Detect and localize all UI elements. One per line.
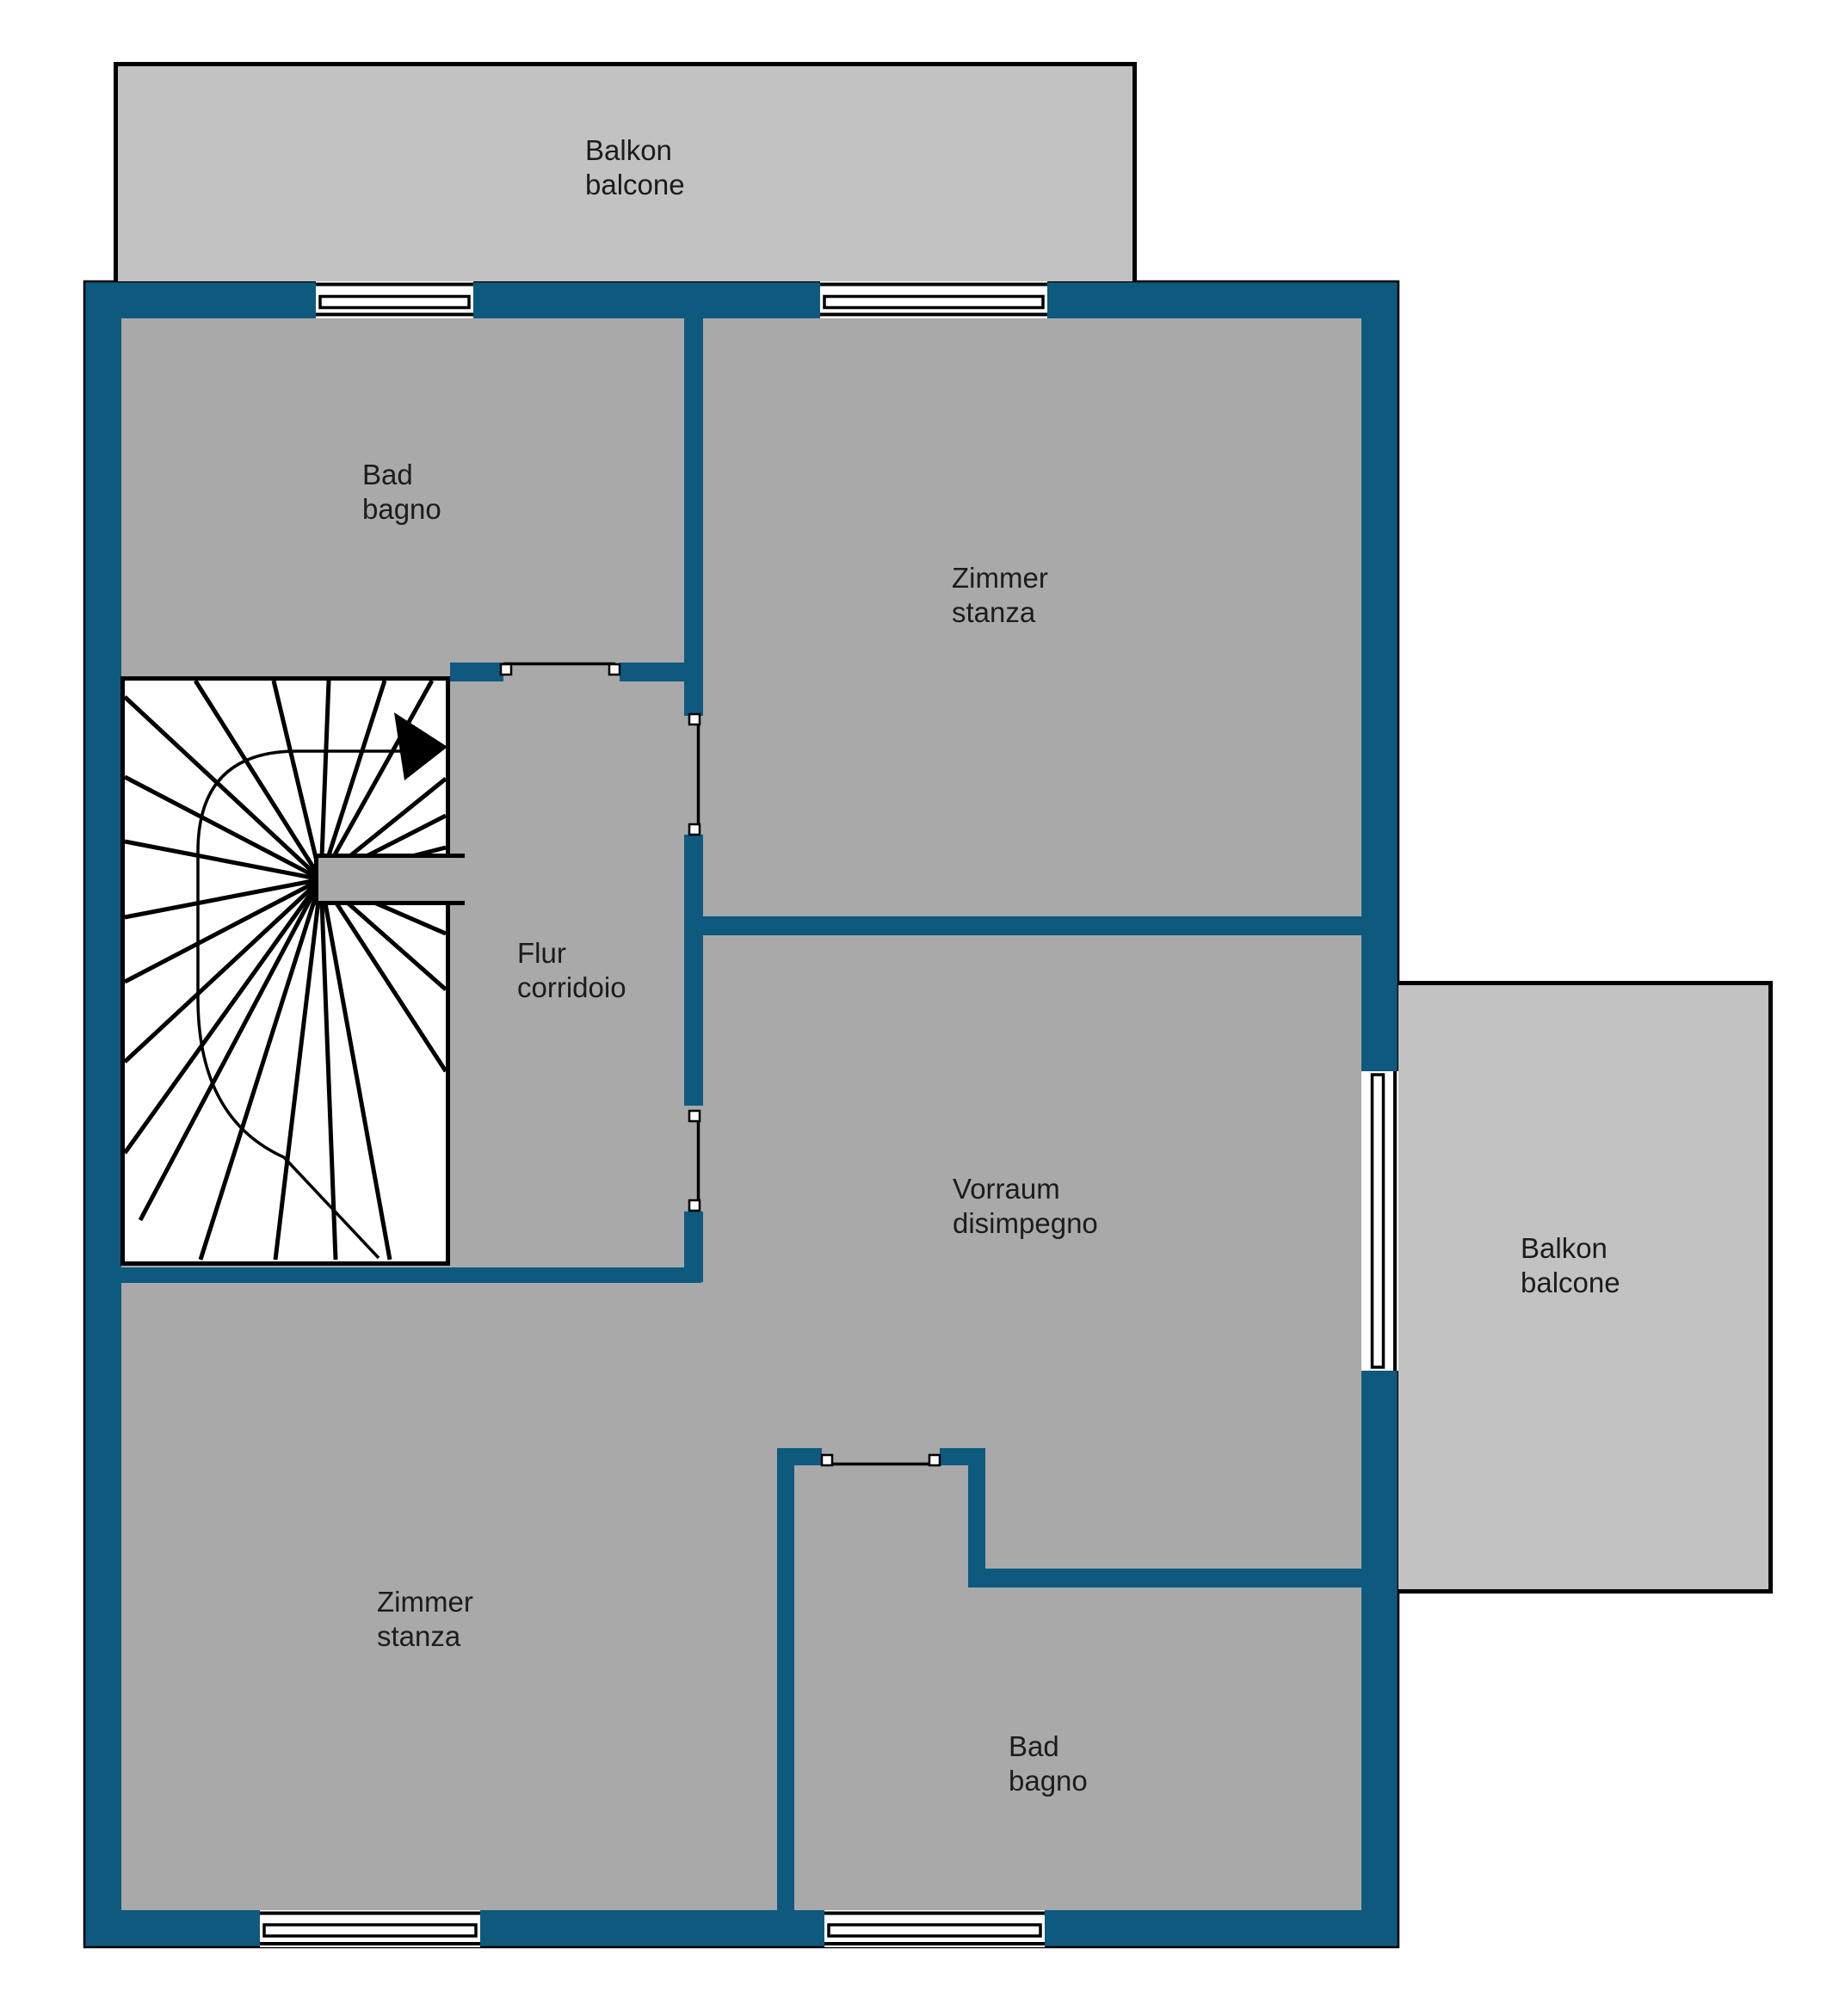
- staircase: [123, 679, 468, 1264]
- svg-text:Bad: Bad: [1009, 1730, 1059, 1762]
- window-bottom-a-mullion: [264, 1925, 476, 1936]
- wall-bad-bottom-north: [968, 1569, 1361, 1588]
- balcony-door-right: [1361, 1071, 1398, 1371]
- svg-text:bagno: bagno: [1009, 1765, 1088, 1797]
- wall-flur-east-mid: [684, 835, 703, 1106]
- floor-plan-svg: Balkon balcone Bad bagno Zimmer stanza F…: [0, 0, 1839, 2016]
- window-top-b: [820, 281, 1047, 318]
- wall-bad-bottom-notch: [968, 1448, 985, 1588]
- window-top-b-mullion: [824, 297, 1043, 308]
- svg-text:Flur: Flur: [517, 937, 566, 969]
- svg-text:bagno: bagno: [362, 493, 441, 525]
- svg-text:Zimmer: Zimmer: [952, 562, 1048, 594]
- floor-plan-page: Balkon balcone Bad bagno Zimmer stanza F…: [0, 0, 1839, 2016]
- wall-bad-top-south-b: [620, 663, 684, 681]
- svg-text:Vorraum: Vorraum: [953, 1173, 1060, 1205]
- balcony-door-mullion: [1373, 1075, 1384, 1367]
- svg-text:balcone: balcone: [585, 169, 685, 200]
- stair-landing-floor: [314, 854, 467, 905]
- stair-landing: [314, 854, 467, 905]
- window-top-a: [316, 281, 473, 318]
- window-bottom-b-mullion: [829, 1925, 1040, 1936]
- svg-text:Balkon: Balkon: [585, 134, 672, 166]
- wall-zimmer-top-south: [703, 916, 1361, 935]
- svg-text:Balkon: Balkon: [1521, 1232, 1608, 1264]
- svg-text:stanza: stanza: [952, 596, 1036, 628]
- window-top-a-mullion: [320, 297, 469, 308]
- wall-stair-south: [121, 1267, 701, 1283]
- wall-bad-bottom-west: [777, 1448, 794, 1910]
- svg-text:disimpegno: disimpegno: [953, 1207, 1098, 1239]
- svg-text:Zimmer: Zimmer: [377, 1586, 473, 1618]
- wall-bad-top-south-a: [450, 663, 503, 681]
- window-bottom-a: [260, 1910, 480, 1947]
- svg-text:Bad: Bad: [362, 459, 413, 490]
- svg-text:balcone: balcone: [1521, 1267, 1620, 1298]
- wall-flur-east-upper: [684, 318, 703, 716]
- svg-text:stanza: stanza: [377, 1620, 461, 1652]
- svg-text:corridoio: corridoio: [517, 971, 626, 1003]
- window-bottom-b: [824, 1910, 1045, 1947]
